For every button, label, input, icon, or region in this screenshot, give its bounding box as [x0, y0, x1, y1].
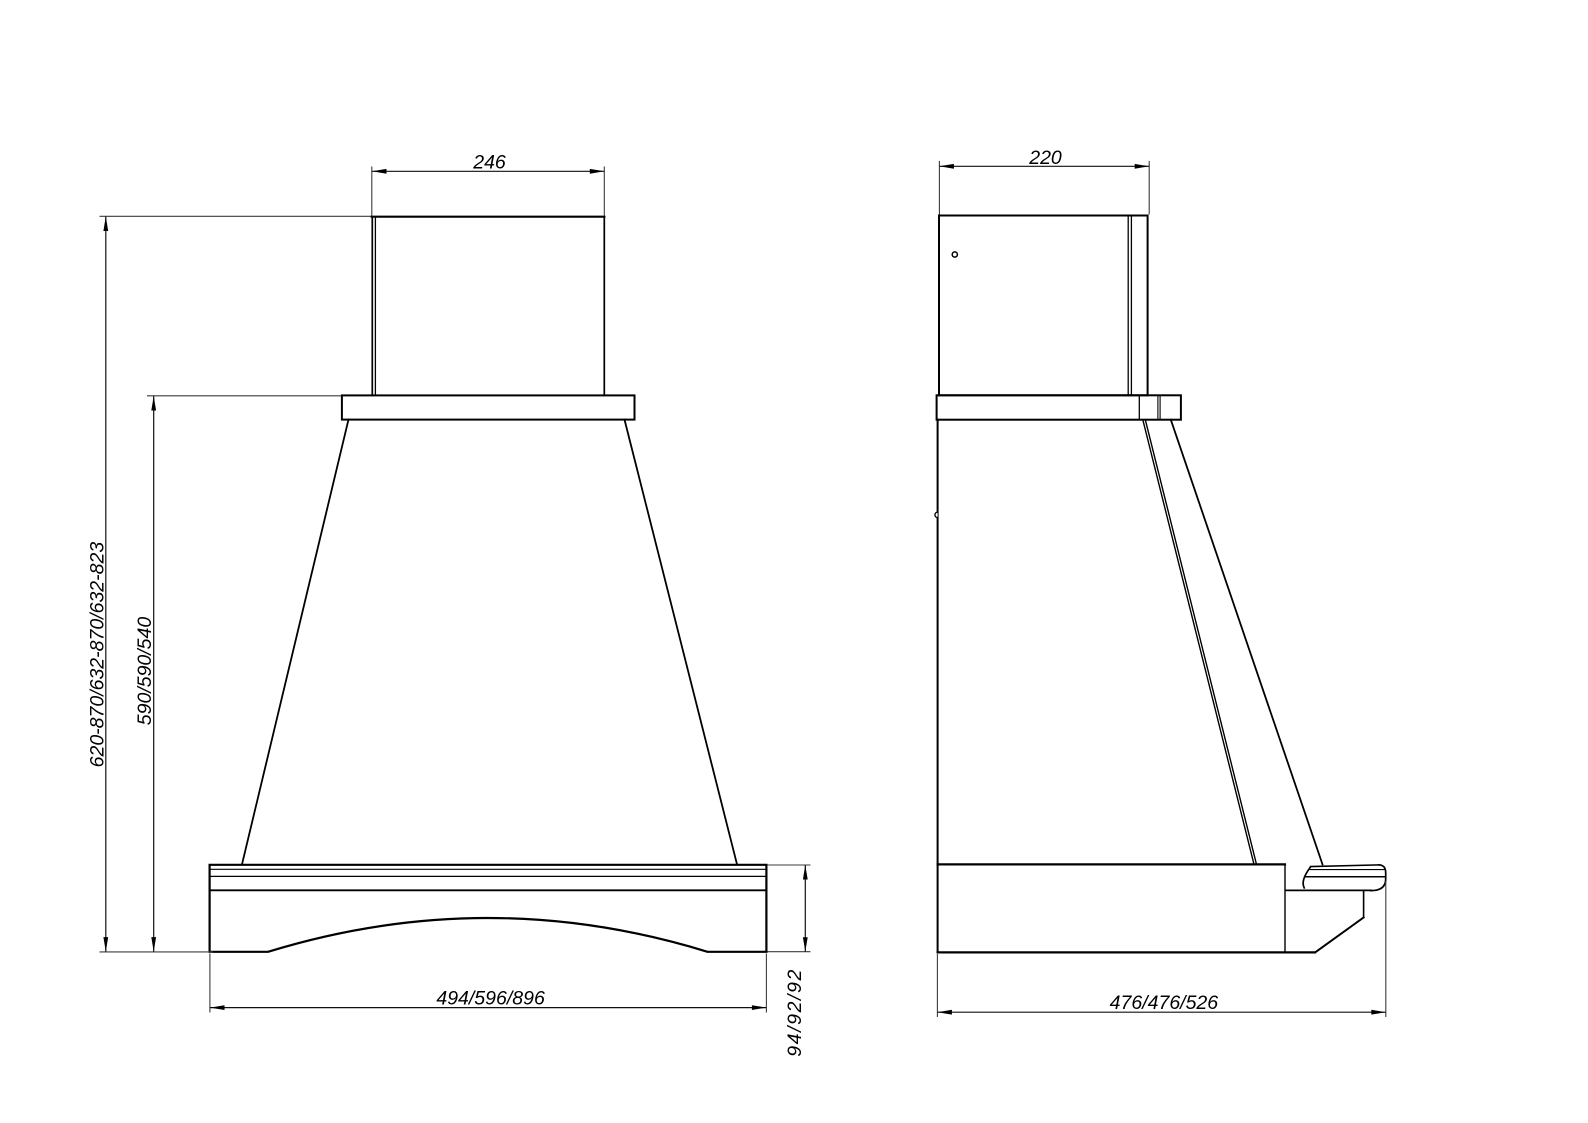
svg-text:590/590/540: 590/590/540 — [134, 617, 156, 726]
svg-text:94/92/92: 94/92/92 — [784, 968, 806, 1057]
svg-text:476/476/526: 476/476/526 — [1110, 992, 1219, 1014]
svg-text:246: 246 — [472, 152, 506, 174]
svg-text:220: 220 — [1028, 147, 1062, 169]
svg-text:620-870/632-870/632-823: 620-870/632-870/632-823 — [86, 542, 108, 768]
svg-text:494/596/896: 494/596/896 — [436, 987, 545, 1009]
